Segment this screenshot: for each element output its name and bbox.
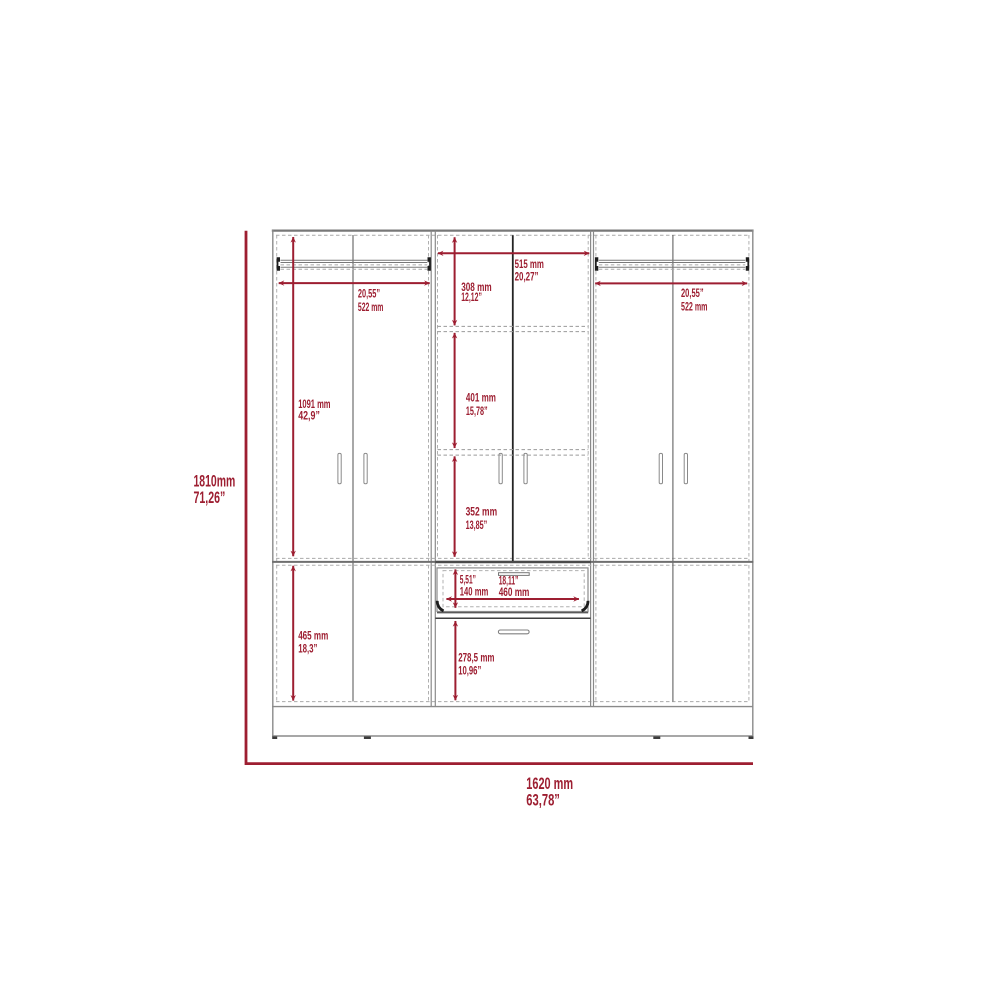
svg-text:18,3”: 18,3”	[298, 642, 317, 655]
svg-text:12,12”: 12,12”	[461, 291, 482, 304]
svg-text:10,96”: 10,96”	[458, 664, 481, 677]
svg-text:20,27”: 20,27”	[515, 270, 539, 283]
svg-text:460 mm: 460 mm	[499, 586, 530, 599]
svg-text:522 mm: 522 mm	[358, 301, 384, 314]
svg-text:352 mm: 352 mm	[466, 506, 498, 519]
svg-text:401 mm: 401 mm	[466, 391, 496, 404]
svg-text:42,9”: 42,9”	[298, 409, 320, 422]
svg-text:20,55”: 20,55”	[681, 287, 704, 300]
svg-text:20,55”: 20,55”	[358, 288, 380, 301]
svg-text:13,85”: 13,85”	[466, 519, 488, 532]
svg-text:465 mm: 465 mm	[298, 629, 328, 642]
svg-text:522 mm: 522 mm	[681, 300, 708, 313]
svg-text:140 mm: 140 mm	[460, 585, 489, 598]
svg-text:15,78”: 15,78”	[466, 405, 488, 418]
svg-text:515 mm: 515 mm	[515, 258, 544, 271]
svg-text:71,26”: 71,26”	[194, 488, 226, 507]
svg-text:278,5 mm: 278,5 mm	[458, 651, 494, 664]
svg-text:63,78”: 63,78”	[526, 791, 560, 810]
